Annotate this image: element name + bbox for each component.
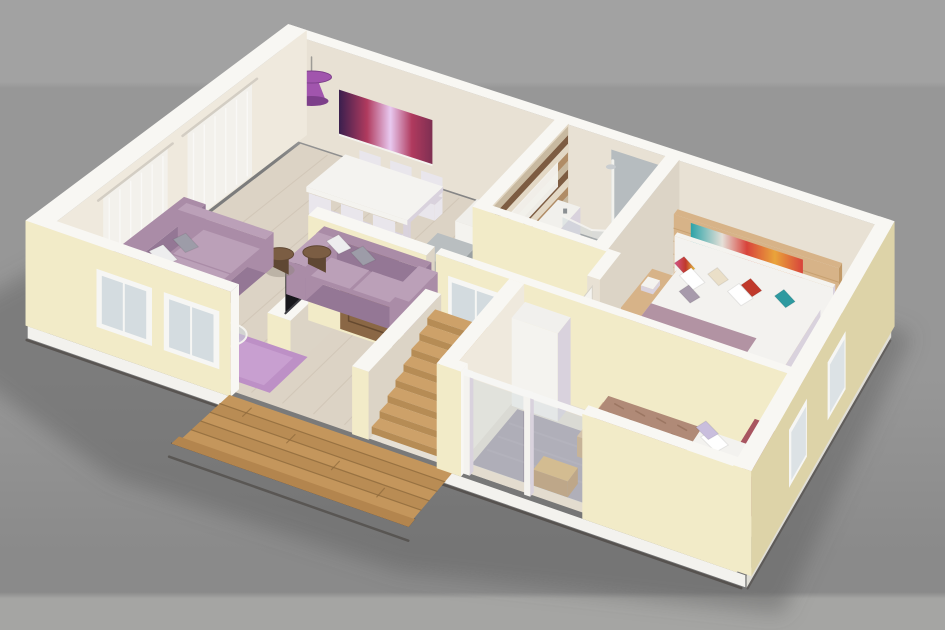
faucet xyxy=(563,209,567,214)
balustrade-post-front xyxy=(464,374,470,476)
balustrade-post-side xyxy=(530,392,534,497)
small-bedroom-front-wall-left-front xyxy=(437,363,461,476)
wall-front-left-side xyxy=(231,284,239,397)
floorplan-3d-render xyxy=(0,0,945,630)
sofa-3seat-arm-side xyxy=(266,232,274,273)
drum-table-top xyxy=(303,246,331,259)
balustrade-post-front xyxy=(524,395,530,497)
shower-head xyxy=(606,164,616,169)
stair-stringer-wall-front xyxy=(352,366,369,440)
balustrade-post-side xyxy=(470,371,474,475)
wall-right-exterior-front xyxy=(733,465,751,576)
